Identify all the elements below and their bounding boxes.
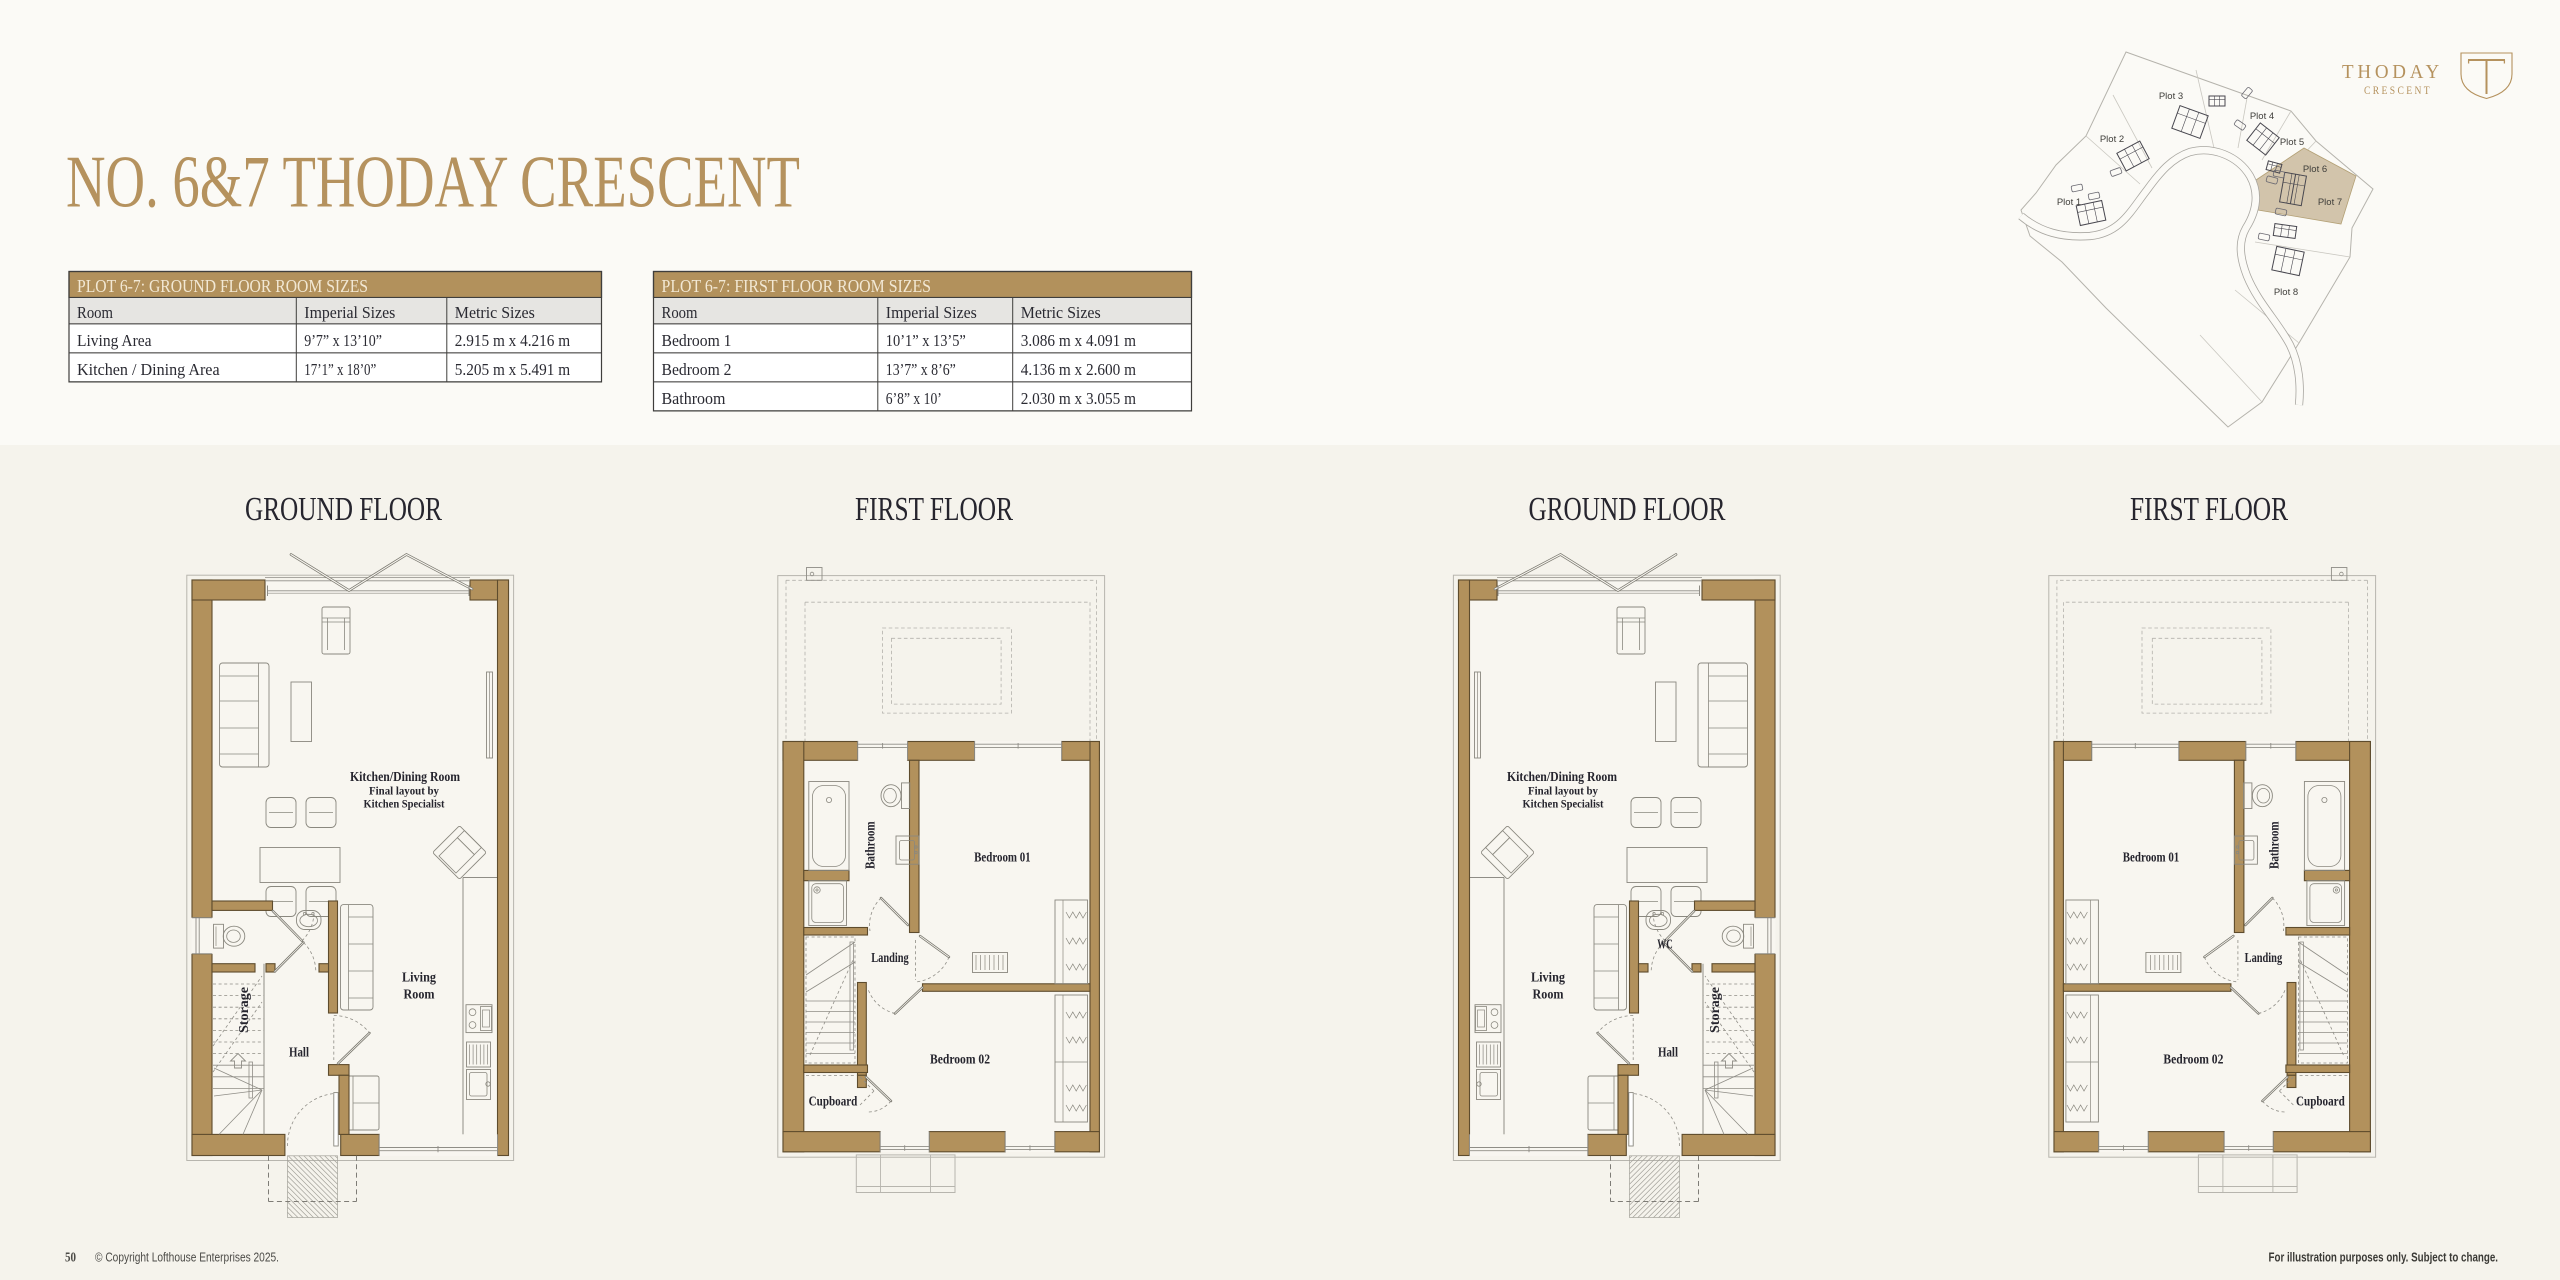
svg-text:Final layout by: Final layout by <box>1528 786 1598 798</box>
svg-text:Kitchen Specialist: Kitchen Specialist <box>1523 799 1604 811</box>
svg-text:CRESCENT: CRESCENT <box>2364 83 2432 97</box>
svg-text:Bedroom 01: Bedroom 01 <box>2123 850 2180 865</box>
svg-text:GROUND FLOOR: GROUND FLOOR <box>245 491 442 528</box>
svg-text:Plot 4: Plot 4 <box>2250 111 2274 122</box>
svg-text:9’7” x 13’10”: 9’7” x 13’10” <box>304 331 382 350</box>
svg-text:Plot 2: Plot 2 <box>2100 134 2124 145</box>
svg-text:Room: Room <box>662 303 698 322</box>
svg-text:Bedroom 2: Bedroom 2 <box>662 360 732 379</box>
svg-text:Room: Room <box>77 303 113 322</box>
svg-text:Room: Room <box>1533 987 1565 1002</box>
svg-text:Plot 8: Plot 8 <box>2274 287 2298 298</box>
svg-text:Hall: Hall <box>289 1045 309 1060</box>
svg-text:© Copyright Lofthouse Enterpri: © Copyright Lofthouse Enterprises 2025. <box>95 1251 279 1265</box>
svg-text:10’1” x 13’5”: 10’1” x 13’5” <box>886 331 966 350</box>
svg-text:Landing: Landing <box>871 950 909 965</box>
svg-text:Living: Living <box>402 970 436 985</box>
svg-text:Bathroom: Bathroom <box>662 389 726 408</box>
svg-text:Imperial Sizes: Imperial Sizes <box>886 303 977 322</box>
svg-text:Plot 5: Plot 5 <box>2280 137 2304 148</box>
svg-text:NO. 6&7 THODAY CRESCENT: NO. 6&7 THODAY CRESCENT <box>66 142 800 224</box>
svg-text:GROUND FLOOR: GROUND FLOOR <box>1529 491 1726 528</box>
svg-text:Hall: Hall <box>1658 1045 1678 1060</box>
svg-text:Final layout by: Final layout by <box>369 786 439 798</box>
svg-text:Storage: Storage <box>236 987 251 1033</box>
svg-text:Living Area: Living Area <box>77 331 152 350</box>
svg-text:Kitchen/Dining Room: Kitchen/Dining Room <box>1507 769 1618 784</box>
svg-text:Bathroom: Bathroom <box>2267 821 2282 869</box>
svg-text:Cupboard: Cupboard <box>2296 1094 2345 1109</box>
svg-text:THODAY: THODAY <box>2342 61 2443 83</box>
svg-text:2.030 m x 3.055 m: 2.030 m x 3.055 m <box>1021 389 1136 408</box>
svg-text:PLOT 6-7: FIRST FLOOR ROOM SIZ: PLOT 6-7: FIRST FLOOR ROOM SIZES <box>662 276 932 296</box>
svg-text:5.205 m x 5.491 m: 5.205 m x 5.491 m <box>455 360 570 379</box>
svg-text:4.136 m x 2.600 m: 4.136 m x 2.600 m <box>1021 360 1136 379</box>
svg-text:Room: Room <box>404 987 436 1002</box>
svg-text:Kitchen Specialist: Kitchen Specialist <box>364 799 445 811</box>
svg-text:Plot 7: Plot 7 <box>2318 197 2342 208</box>
svg-text:Kitchen / Dining Area: Kitchen / Dining Area <box>77 360 220 379</box>
svg-text:Storage: Storage <box>1707 987 1722 1033</box>
svg-text:Plot 3: Plot 3 <box>2159 91 2183 102</box>
svg-text:Plot 6: Plot 6 <box>2303 164 2327 175</box>
svg-text:Plot 1: Plot 1 <box>2057 197 2081 208</box>
svg-text:Bedroom 02: Bedroom 02 <box>930 1052 990 1067</box>
svg-text:FIRST FLOOR: FIRST FLOOR <box>855 491 1013 528</box>
svg-text:6’8” x 10’: 6’8” x 10’ <box>886 389 942 408</box>
svg-text:Kitchen/Dining Room: Kitchen/Dining Room <box>350 769 461 784</box>
svg-text:FIRST FLOOR: FIRST FLOOR <box>2130 491 2288 528</box>
svg-text:50: 50 <box>65 1251 76 1266</box>
svg-text:Bedroom 01: Bedroom 01 <box>974 850 1031 865</box>
svg-text:Living: Living <box>1531 970 1565 985</box>
svg-text:3.086 m x 4.091 m: 3.086 m x 4.091 m <box>1021 331 1136 350</box>
svg-text:Bedroom 02: Bedroom 02 <box>2163 1052 2223 1067</box>
svg-text:Landing: Landing <box>2245 950 2283 965</box>
svg-text:17’1” x 18’0”: 17’1” x 18’0” <box>304 360 376 379</box>
svg-text:Bedroom 1: Bedroom 1 <box>662 331 732 350</box>
svg-text:WC: WC <box>1657 937 1673 952</box>
svg-text:Metric Sizes: Metric Sizes <box>1021 303 1101 322</box>
svg-text:2.915 m x 4.216 m: 2.915 m x 4.216 m <box>455 331 570 350</box>
svg-text:For illustration purposes only: For illustration purposes only. Subject … <box>2269 1251 2499 1265</box>
svg-text:PLOT 6-7: GROUND FLOOR ROOM SI: PLOT 6-7: GROUND FLOOR ROOM SIZES <box>77 276 368 296</box>
svg-text:Bathroom: Bathroom <box>863 821 878 869</box>
svg-text:13’7” x 8’6”: 13’7” x 8’6” <box>886 360 956 379</box>
svg-text:Metric Sizes: Metric Sizes <box>455 303 535 322</box>
svg-text:Imperial Sizes: Imperial Sizes <box>304 303 395 322</box>
svg-text:Cupboard: Cupboard <box>809 1094 858 1109</box>
